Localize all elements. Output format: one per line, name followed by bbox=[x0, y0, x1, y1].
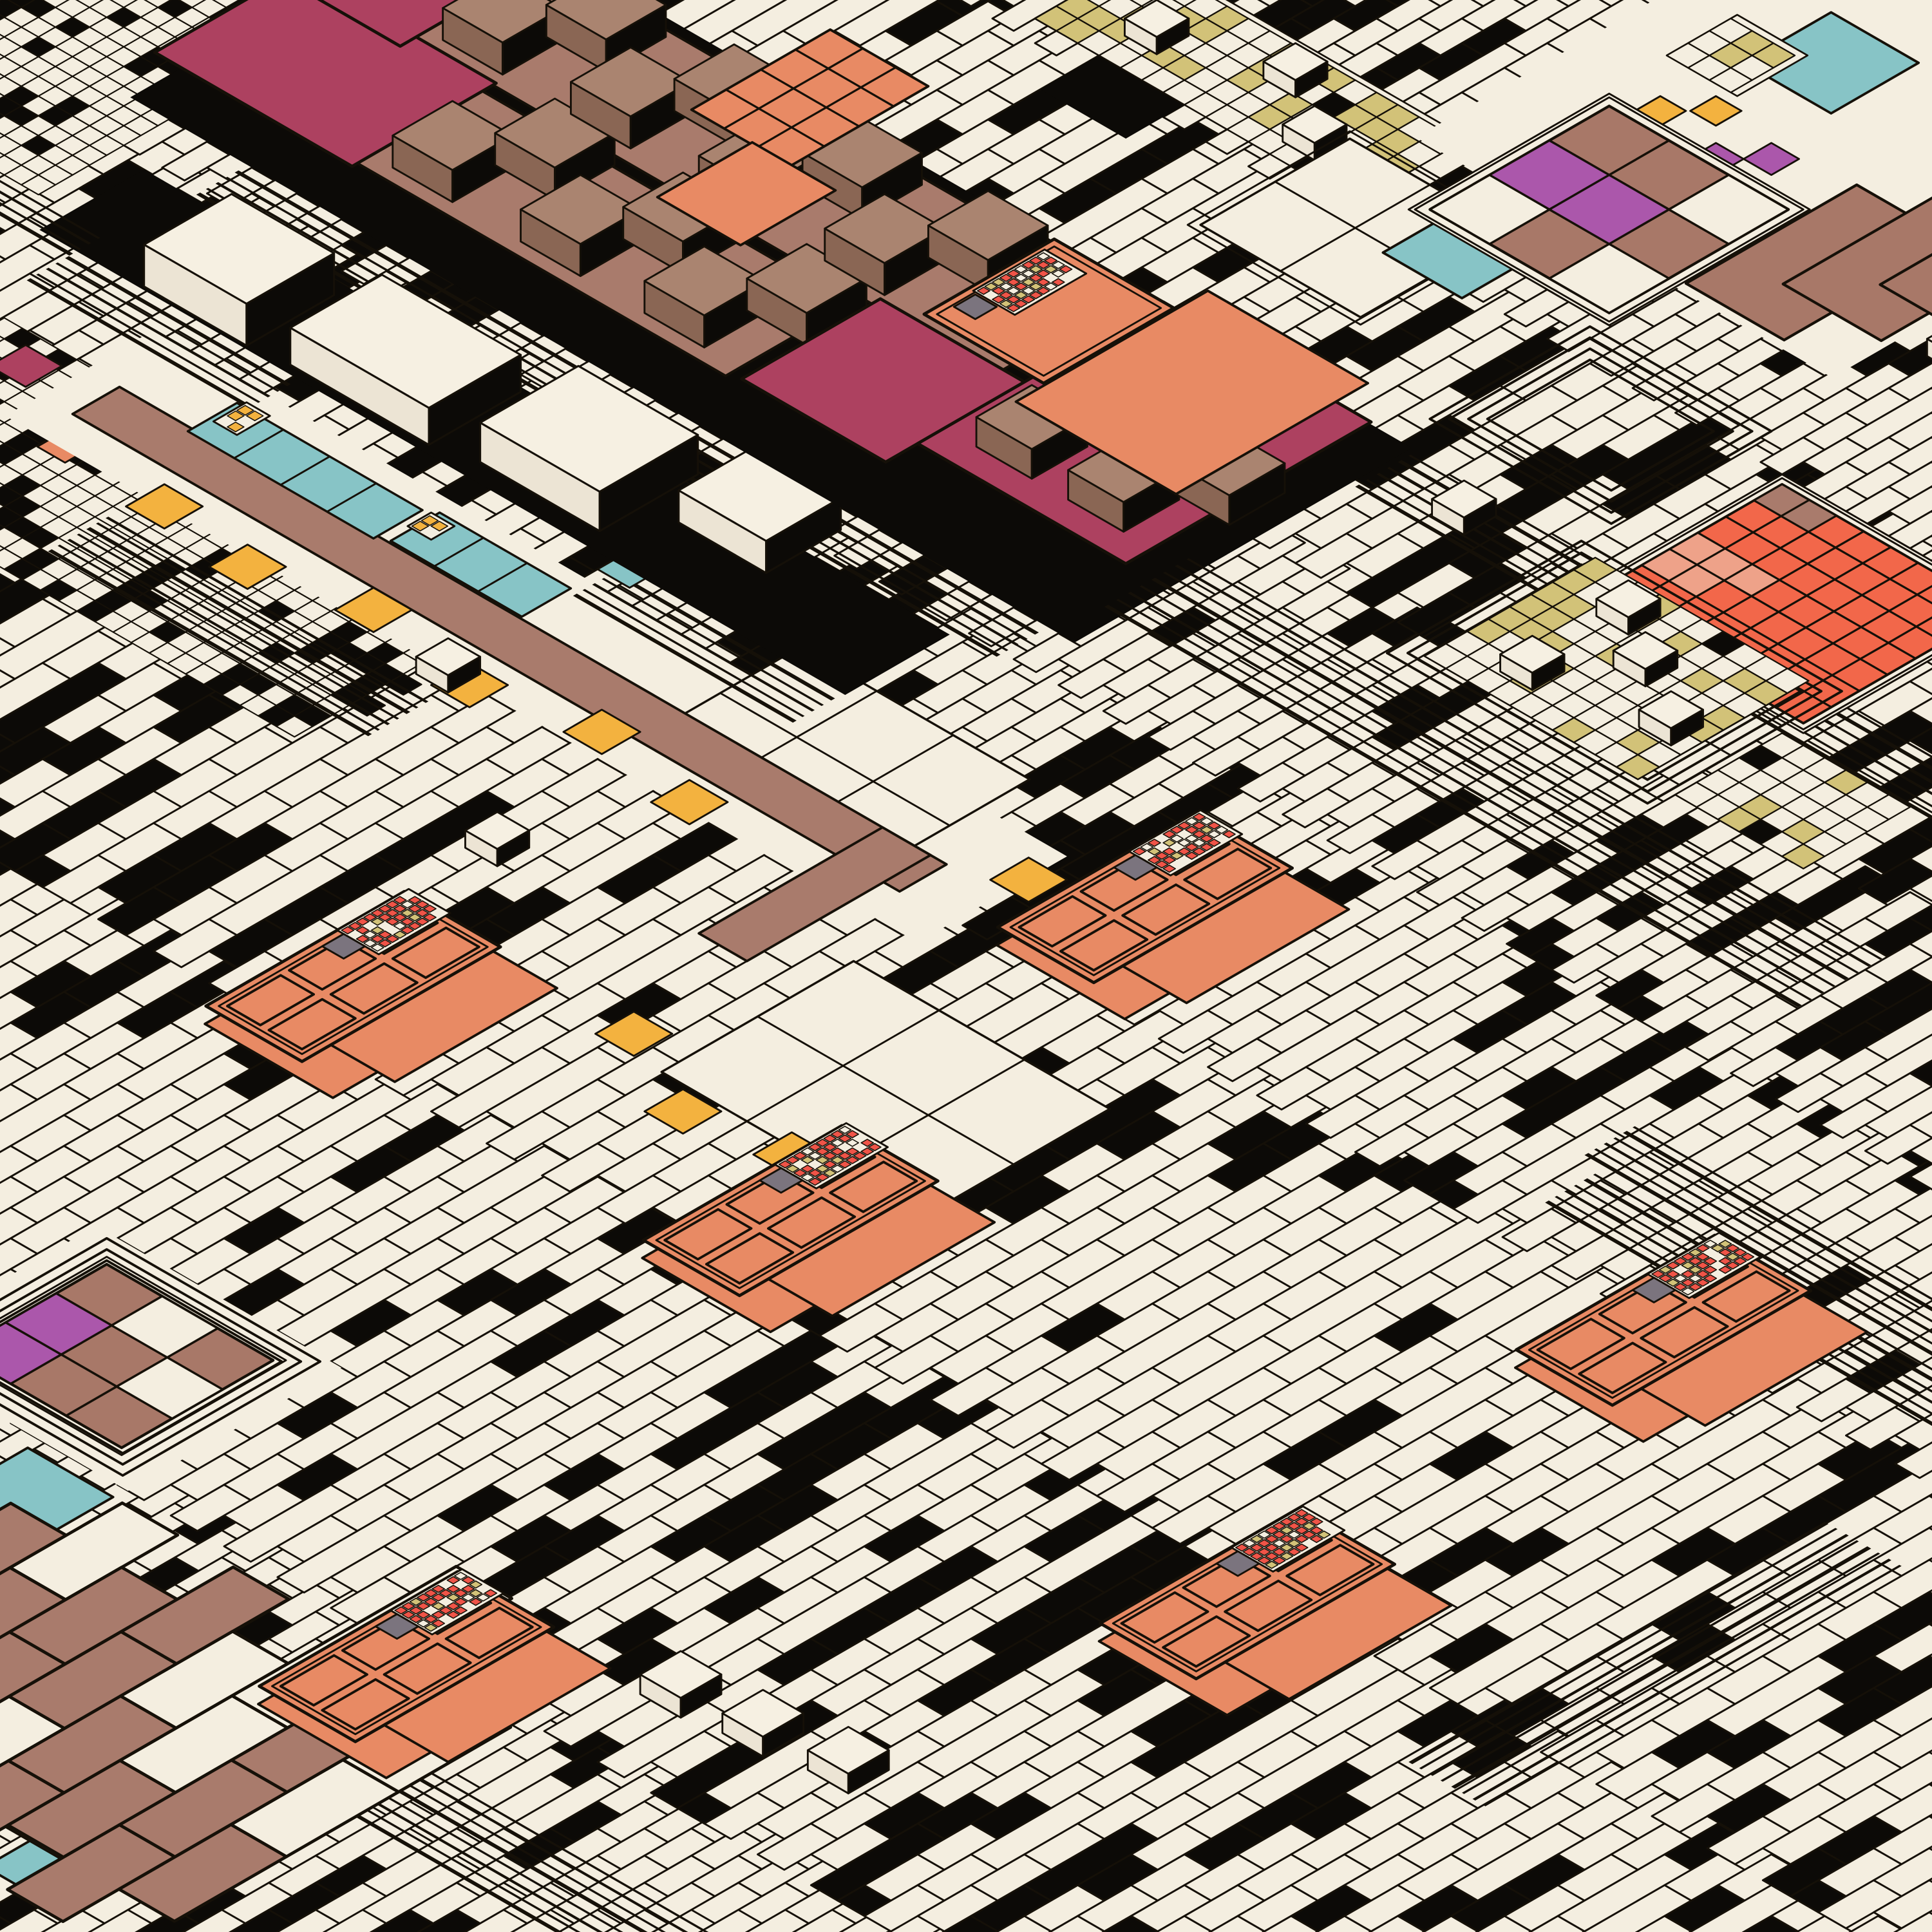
generative-artwork bbox=[0, 0, 1932, 1932]
artwork-canvas bbox=[0, 0, 1932, 1932]
